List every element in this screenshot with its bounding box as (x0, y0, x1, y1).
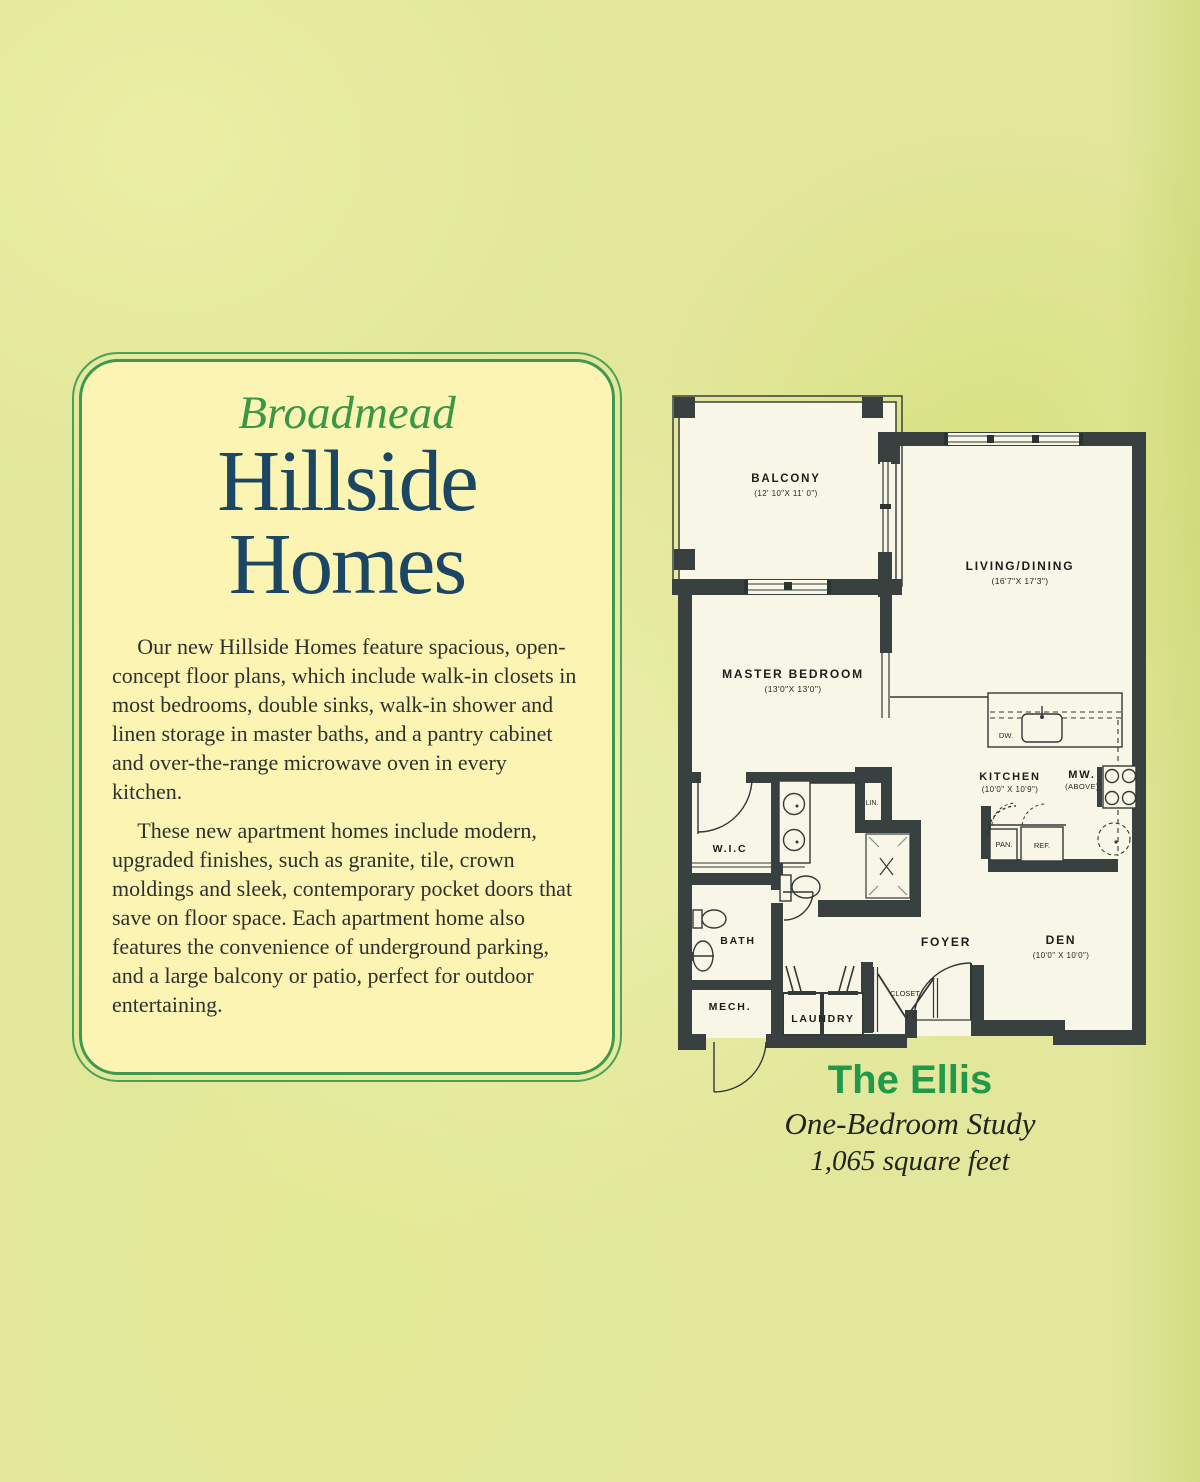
ref-label: REF. (1034, 841, 1050, 850)
foyer-label: FOYER (921, 935, 971, 949)
plan-caption: The Ellis One-Bedroom Study 1,065 square… (666, 1058, 1154, 1178)
brochure-page: Broadmead Hillside Homes Our new Hillsid… (0, 0, 1200, 1482)
living-dims: (16'7"X 17'3") (992, 576, 1049, 586)
info-card: Broadmead Hillside Homes Our new Hillsid… (72, 352, 622, 1082)
den-dims: (10'0" X 10'0") (1033, 951, 1090, 960)
plan-area: 1,065 square feet (666, 1145, 1154, 1178)
info-card-inner: Broadmead Hillside Homes Our new Hillsid… (79, 359, 615, 1075)
kitchen-dims: (10'0" X 10'9") (982, 785, 1039, 794)
paragraph-1: Our new Hillside Homes feature spacious,… (112, 632, 582, 806)
living-label: LIVING/DINING (966, 559, 1075, 573)
paragraph-2: These new apartment homes include modern… (112, 816, 582, 1019)
page-title-line2: Homes (106, 526, 588, 603)
mw-sub-label: (ABOVE) (1065, 782, 1099, 791)
mw-label: MW. (1068, 769, 1095, 781)
master-label: MASTER BEDROOM (722, 667, 864, 681)
plan-name: The Ellis (666, 1058, 1154, 1102)
balcony-label: BALCONY (751, 473, 820, 485)
description-copy: Our new Hillside Homes feature spacious,… (106, 632, 588, 1019)
balcony-dims: (12' 10"X 11' 0") (754, 489, 817, 498)
bath-toilet (693, 910, 726, 928)
range (1097, 766, 1136, 808)
plan-subtitle: One-Bedroom Study (666, 1106, 1154, 1142)
kitchen-label: KITCHEN (979, 771, 1041, 783)
closet-label: CLOSET (890, 989, 920, 998)
den-label: DEN (1046, 933, 1077, 947)
dw-label: DW. (999, 731, 1013, 740)
master-dims: (13'0"X 13'0") (765, 684, 822, 694)
bath-label: BATH (720, 935, 756, 947)
lin-label: LIN. (866, 800, 879, 807)
wic-label: W.I.C (713, 843, 748, 855)
pan-label: PAN. (996, 840, 1013, 849)
laundry-label: LAUNDRY (791, 1013, 855, 1025)
mech-label: MECH. (709, 1001, 752, 1013)
page-title-line1: Hillside (106, 443, 588, 520)
floor-plan: BALCONY (12' 10"X 11' 0") LIVING/DINING … (666, 386, 1150, 1101)
brand-title: Broadmead (106, 390, 588, 437)
